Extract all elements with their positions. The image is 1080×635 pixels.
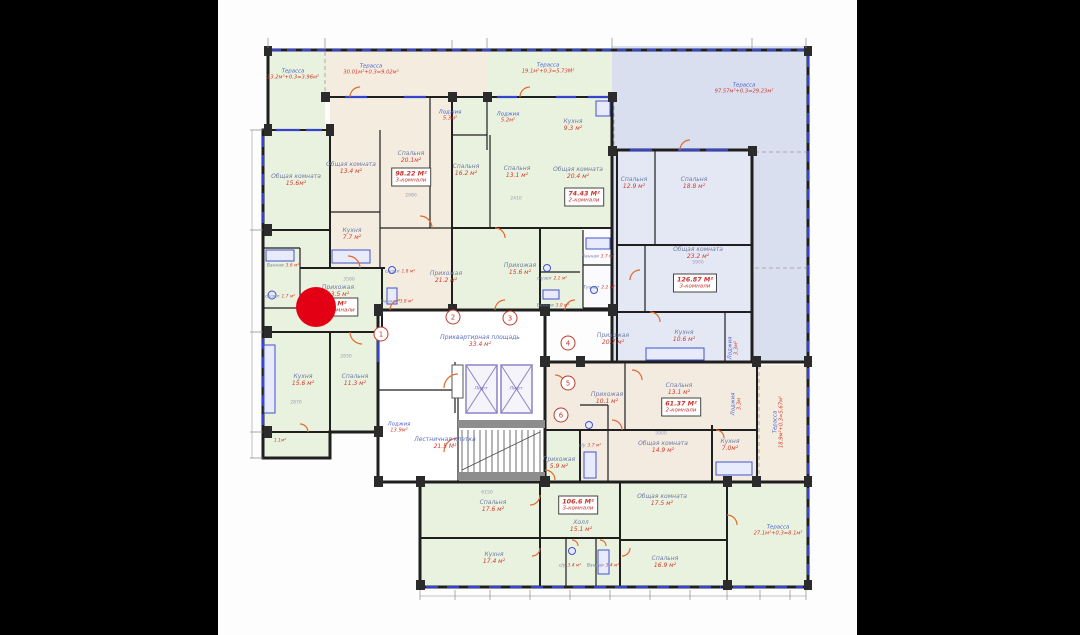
room-label: Лифт <box>509 386 522 392</box>
apartment-area-box: 106.6 М²3-комнали <box>558 496 598 515</box>
room-label: Прихожая21.2 м² <box>430 270 462 284</box>
room-label: с/узел1.7 м² <box>264 282 296 301</box>
dimension-text: 2980 <box>405 194 416 199</box>
red-marker <box>296 287 336 327</box>
room-label: Спальня16.2 м² <box>453 163 480 177</box>
apartment-area-box: 98.22 М²3-комнали <box>391 168 431 187</box>
room-label: Кухня10.6 м² <box>673 329 695 343</box>
room-label: Ванная3.4 м² <box>586 551 620 570</box>
room-label: Кухня7.0м² <box>721 438 740 452</box>
axis-bubble: 6 <box>554 408 569 423</box>
apartment-area-box: 74.43 М²2-комнали <box>564 188 604 207</box>
apartment-area-box: 126.87 М²3-комнали <box>673 274 717 293</box>
room-label: Прихожая20.7 м² <box>597 332 629 346</box>
room-label: Спальня13.1 м² <box>666 382 693 396</box>
axis-bubble: 5 <box>561 376 576 391</box>
labels-layer: Терасса13.2м²+0.3=3.96м²Терасса30.01м²+0… <box>0 0 1080 635</box>
room-label: Прихожая10.1 м² <box>591 391 623 405</box>
room-label: с/узел2.1 м² <box>536 264 568 283</box>
dimension-text: 2830 <box>340 355 351 360</box>
room-label: с/у3.4 м² <box>558 551 582 570</box>
room-label: Кухня7.7 м² <box>343 227 362 241</box>
terrace-label: Терасса19.1м²+0.3=5.73М² <box>522 63 575 76</box>
axis-bubble: 3 <box>503 311 518 326</box>
terrace-label: Лоджия13.9м² <box>388 422 411 435</box>
terrace-label: Терасса27.1м²+0.3=8.1м² <box>754 525 803 538</box>
room-label: Общая комната15.6м² <box>271 173 321 187</box>
room-label: Кухня9.3 м² <box>564 118 583 132</box>
terrace-label: Терасса18.9м²+0.3=5.67м² <box>773 396 786 448</box>
room-label: с/узел1.8 м² <box>384 257 416 276</box>
room-label: Лестничная клетка21.5 М² <box>414 436 475 450</box>
room-label: Общая комната20.4 м² <box>553 166 603 180</box>
room-label: Ванная3.8 м² <box>380 287 414 306</box>
room-label: Ванная3.6 м² <box>266 251 300 270</box>
dimension-text: 2870 <box>290 401 301 406</box>
room-label: Общая комната23.2 м² <box>673 246 723 260</box>
room-label: Ванная3.7 м² <box>581 242 615 261</box>
dimension-text: 6150 <box>481 491 492 496</box>
room-label: с/у3.7 м² <box>578 431 602 450</box>
room-label: Приквартирная площадь33.4 м² <box>440 334 520 348</box>
room-label: Спальня17.6 м² <box>480 499 507 513</box>
axis-bubble: 2 <box>446 310 461 325</box>
terrace-label: Терасса30.01м²+0.3=9.02м² <box>343 64 398 77</box>
room-label: Общая комната13.4 м² <box>326 161 376 175</box>
room-label: 1.1м² <box>271 426 287 445</box>
canvas: Терасса13.2м²+0.3=3.96м²Терасса30.01м²+0… <box>0 0 1080 635</box>
terrace-label: Лоджия5.2м² <box>497 112 520 125</box>
dimension-text: 5900 <box>692 261 703 266</box>
room-label: Прихожая5.9 м² <box>543 456 575 470</box>
room-label: Общая комната17.5 м² <box>637 493 687 507</box>
room-label: Спальня18.8 м² <box>681 176 708 190</box>
room-label: Спальня20.1м² <box>398 150 425 164</box>
dimension-text: 5900 <box>655 432 666 437</box>
axis-bubble: 1 <box>374 327 389 342</box>
room-label: Спальня16.9 м² <box>652 555 679 569</box>
dimension-text: 3580 <box>343 278 354 283</box>
apartment-area-box: 61.37 М²2-комнали <box>661 398 701 417</box>
room-label: Ванная3.0 м² <box>536 291 570 310</box>
terrace-label: Терасса97.57м²+0.3=29.23м² <box>715 83 774 96</box>
room-label: Лифт <box>474 386 487 392</box>
room-label: Спальня13.1 м² <box>504 165 531 179</box>
room-label: Спальня12.9 м² <box>621 176 648 190</box>
terrace-label: Лоджия3.3м² <box>728 337 741 360</box>
axis-bubble: 4 <box>561 336 576 351</box>
room-label: Спальня11.3 м² <box>342 373 369 387</box>
room-label: Туалет2.2 м² <box>582 273 616 292</box>
room-label: Прихожая15.6 м² <box>504 262 536 276</box>
terrace-label: Лоджия3.3м <box>731 393 744 416</box>
room-label: Холл15.1 м² <box>570 519 592 533</box>
terrace-label: Терасса13.2м²+0.3=3.96м² <box>267 69 319 82</box>
room-label: Общая комната14.9 м² <box>638 440 688 454</box>
dimension-text: 2410 <box>510 197 521 202</box>
room-label: Кухня17.4 м² <box>483 551 505 565</box>
room-label: Кухня15.6 м² <box>292 373 314 387</box>
terrace-label: Лоджия5.3м² <box>439 110 462 123</box>
